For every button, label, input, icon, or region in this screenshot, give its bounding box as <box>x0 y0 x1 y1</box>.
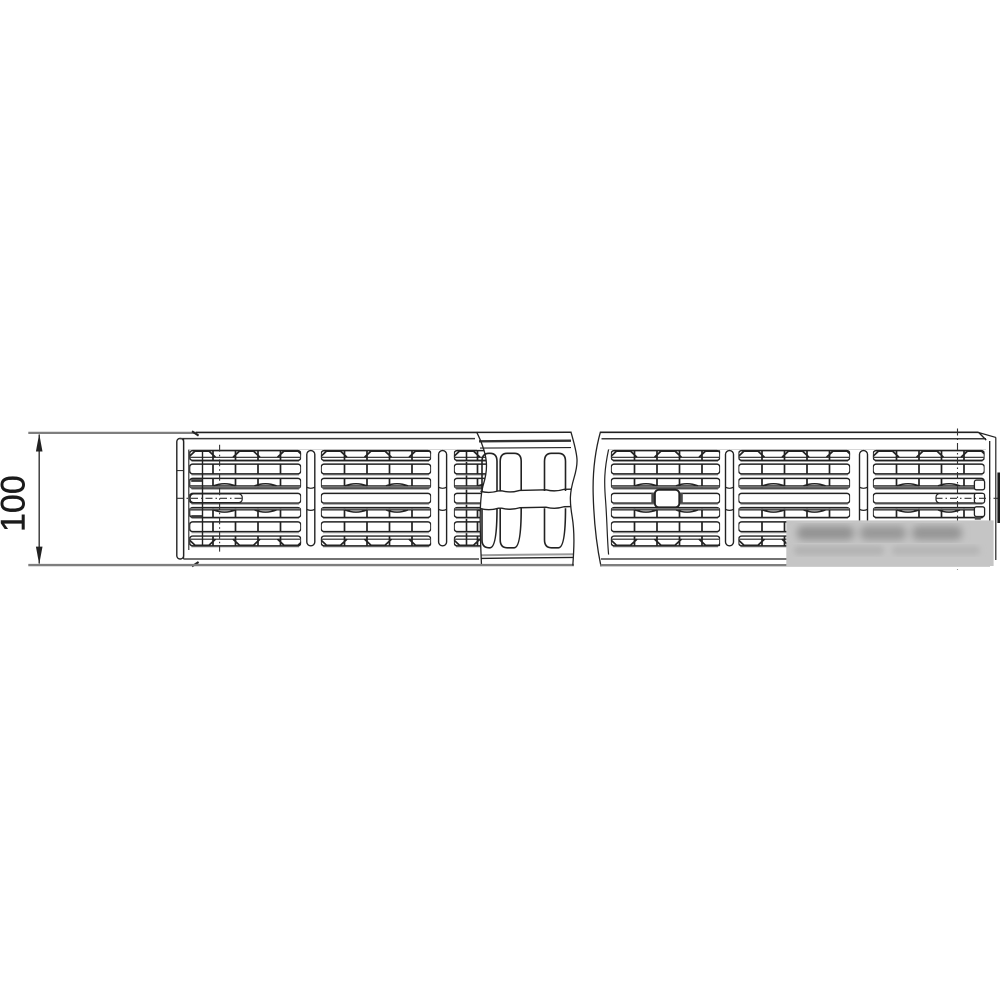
svg-text:100: 100 <box>0 475 32 532</box>
